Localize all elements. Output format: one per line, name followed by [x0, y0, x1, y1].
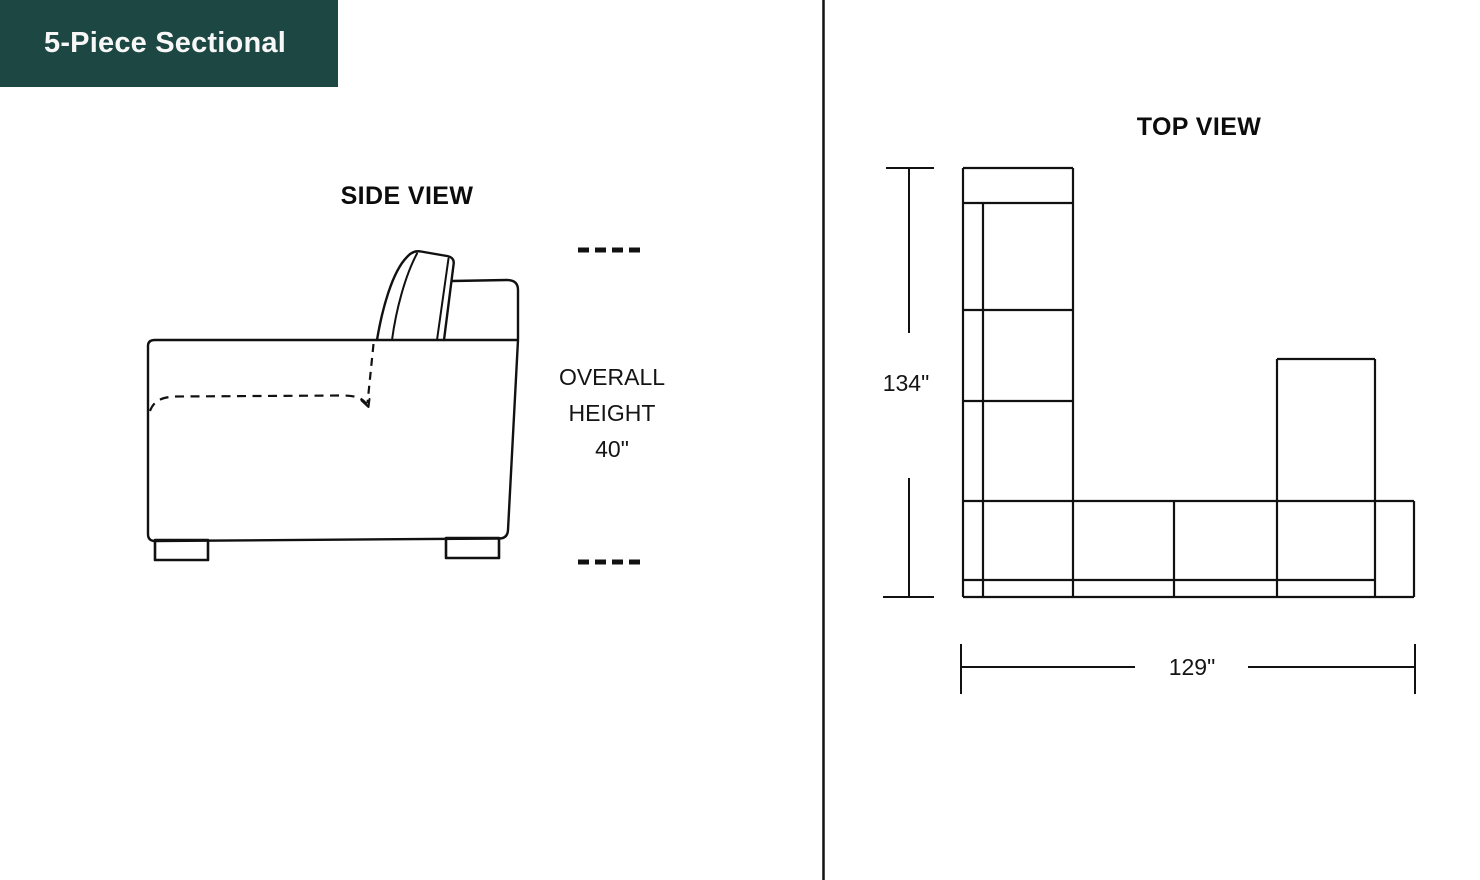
overall-height-annotation: OVERALL HEIGHT 40": [512, 359, 712, 467]
sofa-back-foot: [155, 540, 208, 560]
sofa-armrest-outline: [452, 280, 518, 339]
width-dimension: 129": [961, 644, 1415, 694]
sofa-backrest-seam-left: [392, 254, 417, 341]
height-dimension-label: 134": [883, 370, 930, 396]
product-badge: 5-Piece Sectional: [0, 0, 338, 87]
sofa-backrest-cushion-outline: [377, 251, 454, 340]
overall-height-annotation-line3: 40": [512, 431, 712, 467]
product-badge-label: 5-Piece Sectional: [44, 27, 286, 60]
sofa-front-foot: [446, 538, 499, 558]
backrest-hidden-edge-dashed: [368, 344, 374, 403]
seat-hidden-edge-dashed: [150, 396, 369, 412]
top-view-title: TOP VIEW: [1049, 113, 1349, 142]
height-dimension: 134": [883, 168, 934, 597]
top-view-sectional-drawing: [963, 168, 1414, 597]
side-view-title: SIDE VIEW: [257, 182, 557, 211]
overall-height-annotation-line2: HEIGHT: [512, 395, 712, 431]
width-dimension-label: 129": [1169, 654, 1216, 680]
sofa-backrest-seam-right: [437, 259, 449, 341]
sofa-side-view-drawing: [148, 251, 518, 560]
overall-height-annotation-line1: OVERALL: [512, 359, 712, 395]
sofa-body-outline: [148, 340, 518, 541]
